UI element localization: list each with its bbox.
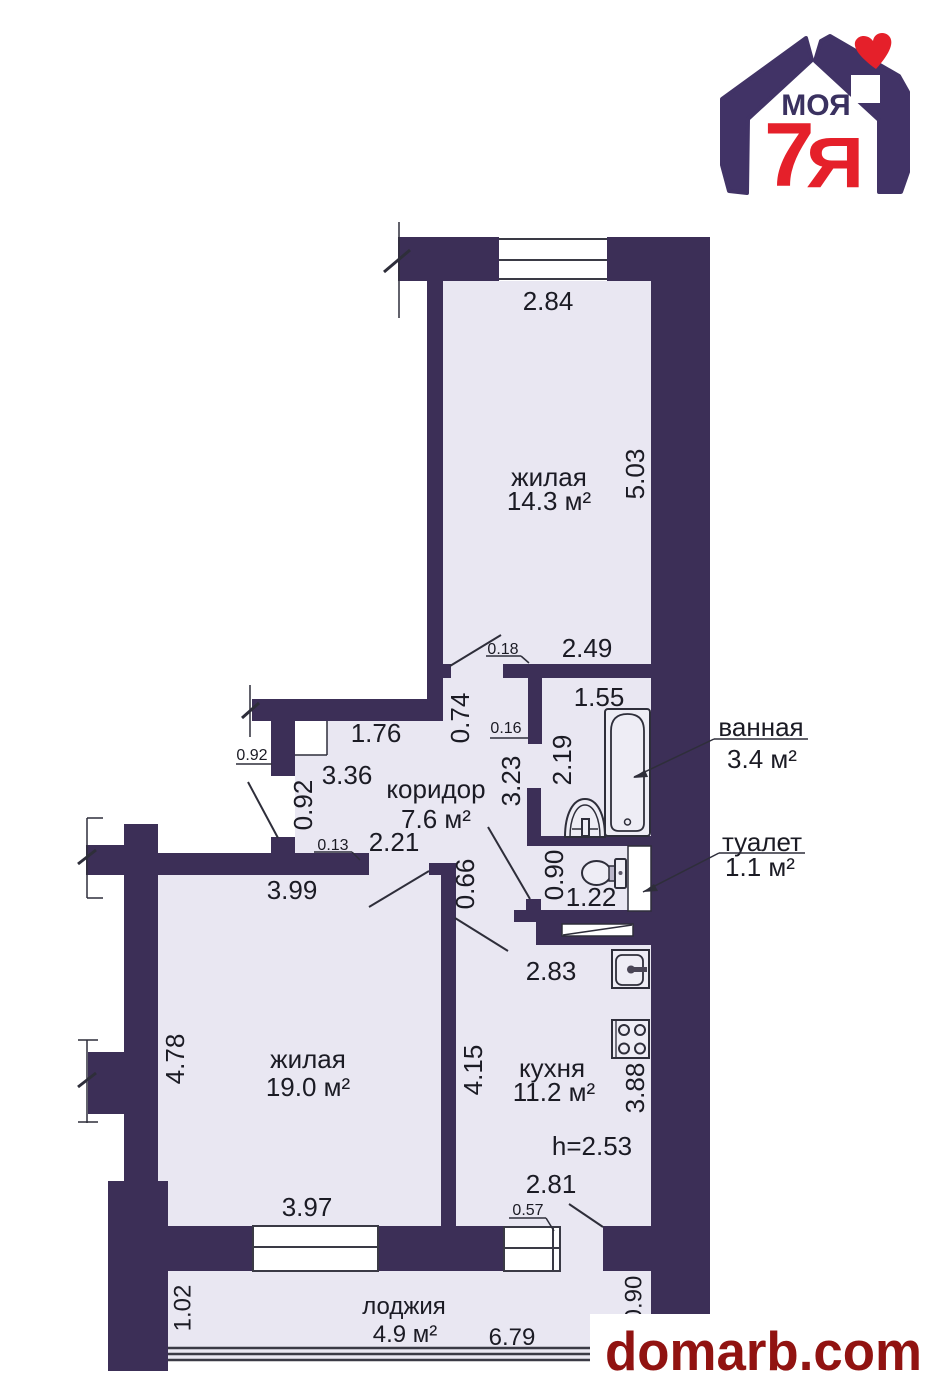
svg-text:лоджия: лоджия — [362, 1293, 446, 1320]
svg-text:4.15: 4.15 — [458, 1045, 488, 1096]
svg-text:0.66: 0.66 — [450, 859, 480, 910]
svg-text:5.03: 5.03 — [620, 449, 650, 500]
svg-text:2.84: 2.84 — [523, 286, 574, 316]
svg-text:ванная: ванная — [718, 712, 803, 742]
svg-text:0.74: 0.74 — [445, 693, 475, 744]
svg-text:4.78: 4.78 — [160, 1034, 190, 1085]
svg-text:3.99: 3.99 — [267, 875, 318, 905]
svg-text:domarb.com: domarb.com — [605, 1320, 922, 1382]
svg-text:0.90: 0.90 — [539, 850, 569, 901]
svg-text:0.57: 0.57 — [512, 1202, 543, 1219]
svg-text:6.79: 6.79 — [489, 1324, 536, 1351]
svg-text:жилая: жилая — [270, 1044, 346, 1074]
svg-text:3.23: 3.23 — [496, 756, 526, 807]
svg-text:4.9 м²: 4.9 м² — [373, 1321, 438, 1348]
svg-text:2.19: 2.19 — [547, 735, 577, 786]
svg-text:2.21: 2.21 — [369, 827, 420, 857]
svg-text:1.02: 1.02 — [169, 1285, 196, 1332]
svg-text:1.22: 1.22 — [566, 882, 617, 912]
svg-text:19.0 м²: 19.0 м² — [266, 1072, 351, 1102]
svg-text:1.76: 1.76 — [351, 718, 402, 748]
svg-text:коридор: коридор — [386, 774, 485, 804]
svg-text:0.92: 0.92 — [236, 747, 267, 764]
svg-text:3.36: 3.36 — [322, 760, 373, 790]
svg-text:11.2 м²: 11.2 м² — [513, 1077, 596, 1107]
svg-text:2.81: 2.81 — [526, 1169, 577, 1199]
svg-text:3.97: 3.97 — [282, 1192, 333, 1222]
svg-text:3.88: 3.88 — [620, 1063, 650, 1114]
svg-text:14.3 м²: 14.3 м² — [507, 486, 592, 516]
svg-text:0.92: 0.92 — [288, 780, 318, 831]
svg-text:3.4 м²: 3.4 м² — [727, 744, 797, 774]
svg-text:2.83: 2.83 — [526, 956, 577, 986]
svg-text:2.49: 2.49 — [562, 633, 613, 663]
svg-text:h=2.53: h=2.53 — [552, 1131, 632, 1161]
svg-text:0.16: 0.16 — [490, 720, 521, 737]
svg-text:1.55: 1.55 — [574, 682, 625, 712]
svg-text:Я: Я — [806, 124, 864, 203]
svg-text:1.1 м²: 1.1 м² — [725, 852, 795, 882]
